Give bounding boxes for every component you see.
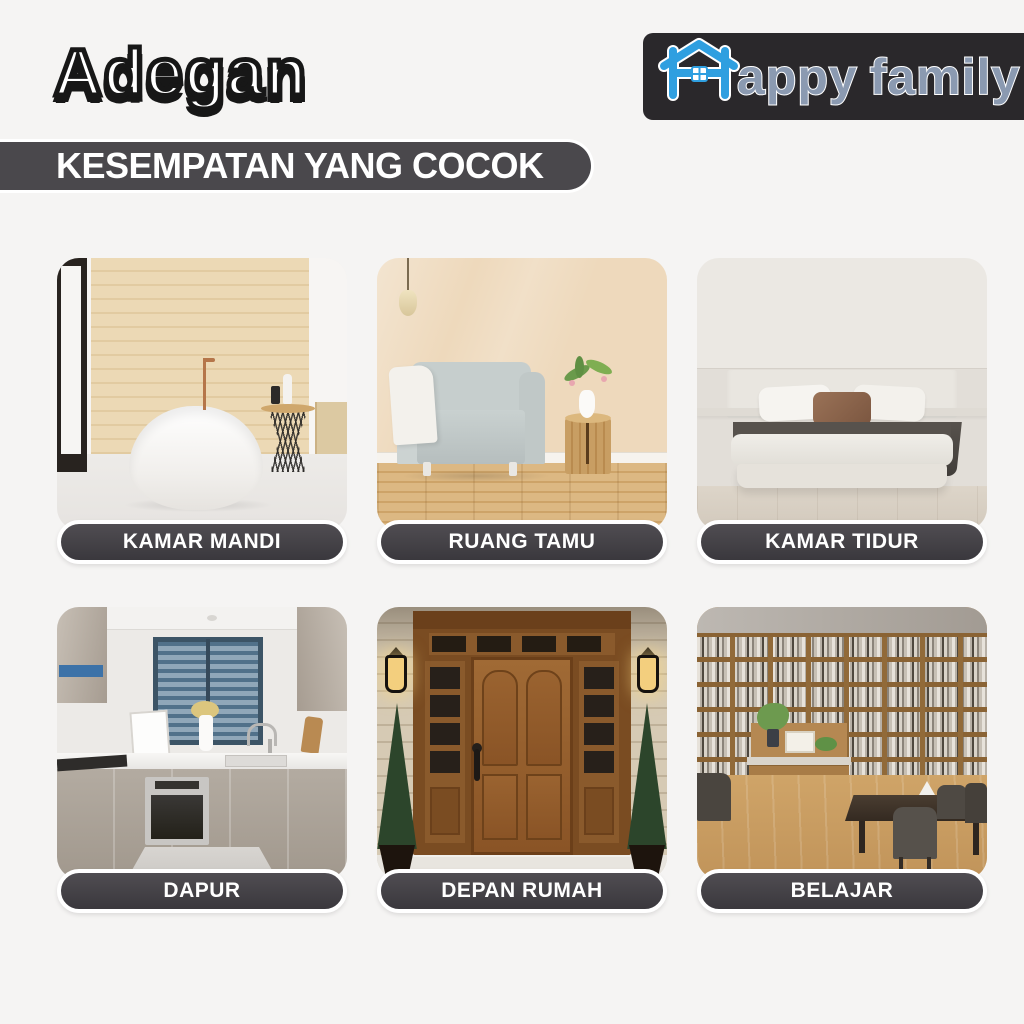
living-room-photo bbox=[377, 258, 667, 530]
card-belajar: BELAJAR bbox=[697, 607, 987, 913]
sink-faucet bbox=[247, 723, 277, 746]
small-green-plant bbox=[815, 737, 837, 751]
oven-control-panel bbox=[155, 781, 199, 789]
accent-pillow bbox=[813, 392, 871, 426]
label-pill-kamar-mandi: KAMAR MANDI bbox=[57, 520, 347, 564]
faucet-spout bbox=[203, 358, 215, 362]
card-ruang-tamu: RUANG TAMU bbox=[377, 258, 667, 564]
side-table-top bbox=[261, 404, 315, 413]
house-h-icon bbox=[657, 35, 741, 114]
mattress bbox=[731, 434, 953, 466]
copper-faucet bbox=[203, 358, 206, 410]
dark-vase bbox=[767, 729, 779, 747]
armchair-leg bbox=[423, 462, 431, 476]
study-chair-front bbox=[893, 807, 937, 859]
plant-leaf bbox=[575, 356, 584, 378]
study-room-photo bbox=[697, 607, 987, 879]
card-label: DAPUR bbox=[163, 879, 240, 903]
kitchen-photo bbox=[57, 607, 347, 879]
white-throw-blanket bbox=[388, 365, 437, 446]
stump-crack bbox=[586, 420, 589, 464]
table-leg bbox=[859, 821, 865, 853]
card-label: RUANG TAMU bbox=[449, 530, 596, 554]
study-chair-back bbox=[965, 783, 987, 823]
sidelight-panel-left bbox=[430, 787, 460, 835]
front-door-photo bbox=[377, 607, 667, 879]
card-dapur: DAPUR bbox=[57, 607, 347, 913]
label-pill-ruang-tamu: RUANG TAMU bbox=[377, 520, 667, 564]
card-label: KAMAR TIDUR bbox=[765, 530, 919, 554]
label-pill-depan-rumah: DEPAN RUMAH bbox=[377, 869, 667, 913]
sidelight-panel-right bbox=[584, 787, 614, 835]
armchair-leg bbox=[509, 462, 517, 476]
counter-top bbox=[747, 757, 851, 765]
bedroom-photo bbox=[697, 258, 987, 530]
porch-lantern-right bbox=[637, 655, 659, 693]
kitchen-sink bbox=[225, 755, 287, 767]
card-depan-rumah: DEPAN RUMAH bbox=[377, 607, 667, 913]
pendant-lamp bbox=[399, 290, 417, 316]
logo-text-appy: appy bbox=[737, 48, 858, 106]
pink-flower bbox=[569, 380, 575, 386]
oven-door-glass bbox=[151, 795, 203, 839]
ceiling-spotlight bbox=[207, 615, 217, 621]
cutting-board bbox=[301, 716, 324, 754]
card-kamar-tidur: KAMAR TIDUR bbox=[697, 258, 987, 564]
sidelight-panes-right bbox=[584, 667, 614, 779]
upper-cabinet-left bbox=[57, 607, 107, 703]
label-pill-dapur: DAPUR bbox=[57, 869, 347, 913]
bathroom-photo bbox=[57, 258, 347, 530]
sidelight-panes-left bbox=[430, 667, 460, 779]
door-panel-top-right bbox=[526, 670, 562, 766]
front-door bbox=[471, 657, 573, 855]
bed-base bbox=[737, 464, 947, 488]
small-art-frame bbox=[785, 731, 815, 753]
flower-vase bbox=[199, 715, 213, 751]
transom-windows bbox=[429, 633, 615, 655]
study-chair-back bbox=[937, 785, 967, 819]
poster-canvas: Adegan appy family KESEMPATAN YANG COCOK bbox=[0, 0, 1024, 1024]
white-vase bbox=[579, 390, 595, 418]
page-title: Adegan bbox=[54, 34, 308, 110]
label-pill-belajar: BELAJAR bbox=[697, 869, 987, 913]
window-glass bbox=[61, 266, 81, 454]
toiletry-bottle-black bbox=[271, 386, 280, 404]
room-card-grid: KAMAR MANDI bbox=[57, 258, 987, 913]
pink-flower bbox=[601, 376, 607, 382]
header-beam bbox=[413, 611, 631, 629]
door-handle bbox=[474, 749, 480, 781]
blue-shelf-items bbox=[59, 665, 103, 677]
card-label: BELAJAR bbox=[791, 879, 894, 903]
pendant-cord bbox=[407, 258, 409, 292]
card-label: DEPAN RUMAH bbox=[441, 879, 602, 903]
door-panel-bottom-right bbox=[526, 774, 562, 840]
toiletry-bottle-white bbox=[283, 374, 292, 404]
upper-cabinet-right bbox=[297, 607, 347, 711]
table-leg bbox=[973, 821, 979, 855]
card-label: KAMAR MANDI bbox=[123, 530, 281, 554]
subtitle-banner: KESEMPATAN YANG COCOK bbox=[0, 139, 594, 193]
door-panel-top-left bbox=[482, 670, 518, 766]
label-pill-kamar-tidur: KAMAR TIDUR bbox=[697, 520, 987, 564]
happy-family-logo: appy family bbox=[643, 33, 1024, 120]
study-chair-left bbox=[697, 773, 731, 821]
logo-text-family: family bbox=[870, 48, 1021, 106]
study-ceiling bbox=[697, 607, 987, 633]
card-kamar-mandi: KAMAR MANDI bbox=[57, 258, 347, 564]
door-panel-bottom-left bbox=[482, 774, 518, 840]
porch-lantern-left bbox=[385, 655, 407, 693]
subtitle-text: KESEMPATAN YANG COCOK bbox=[56, 145, 544, 187]
